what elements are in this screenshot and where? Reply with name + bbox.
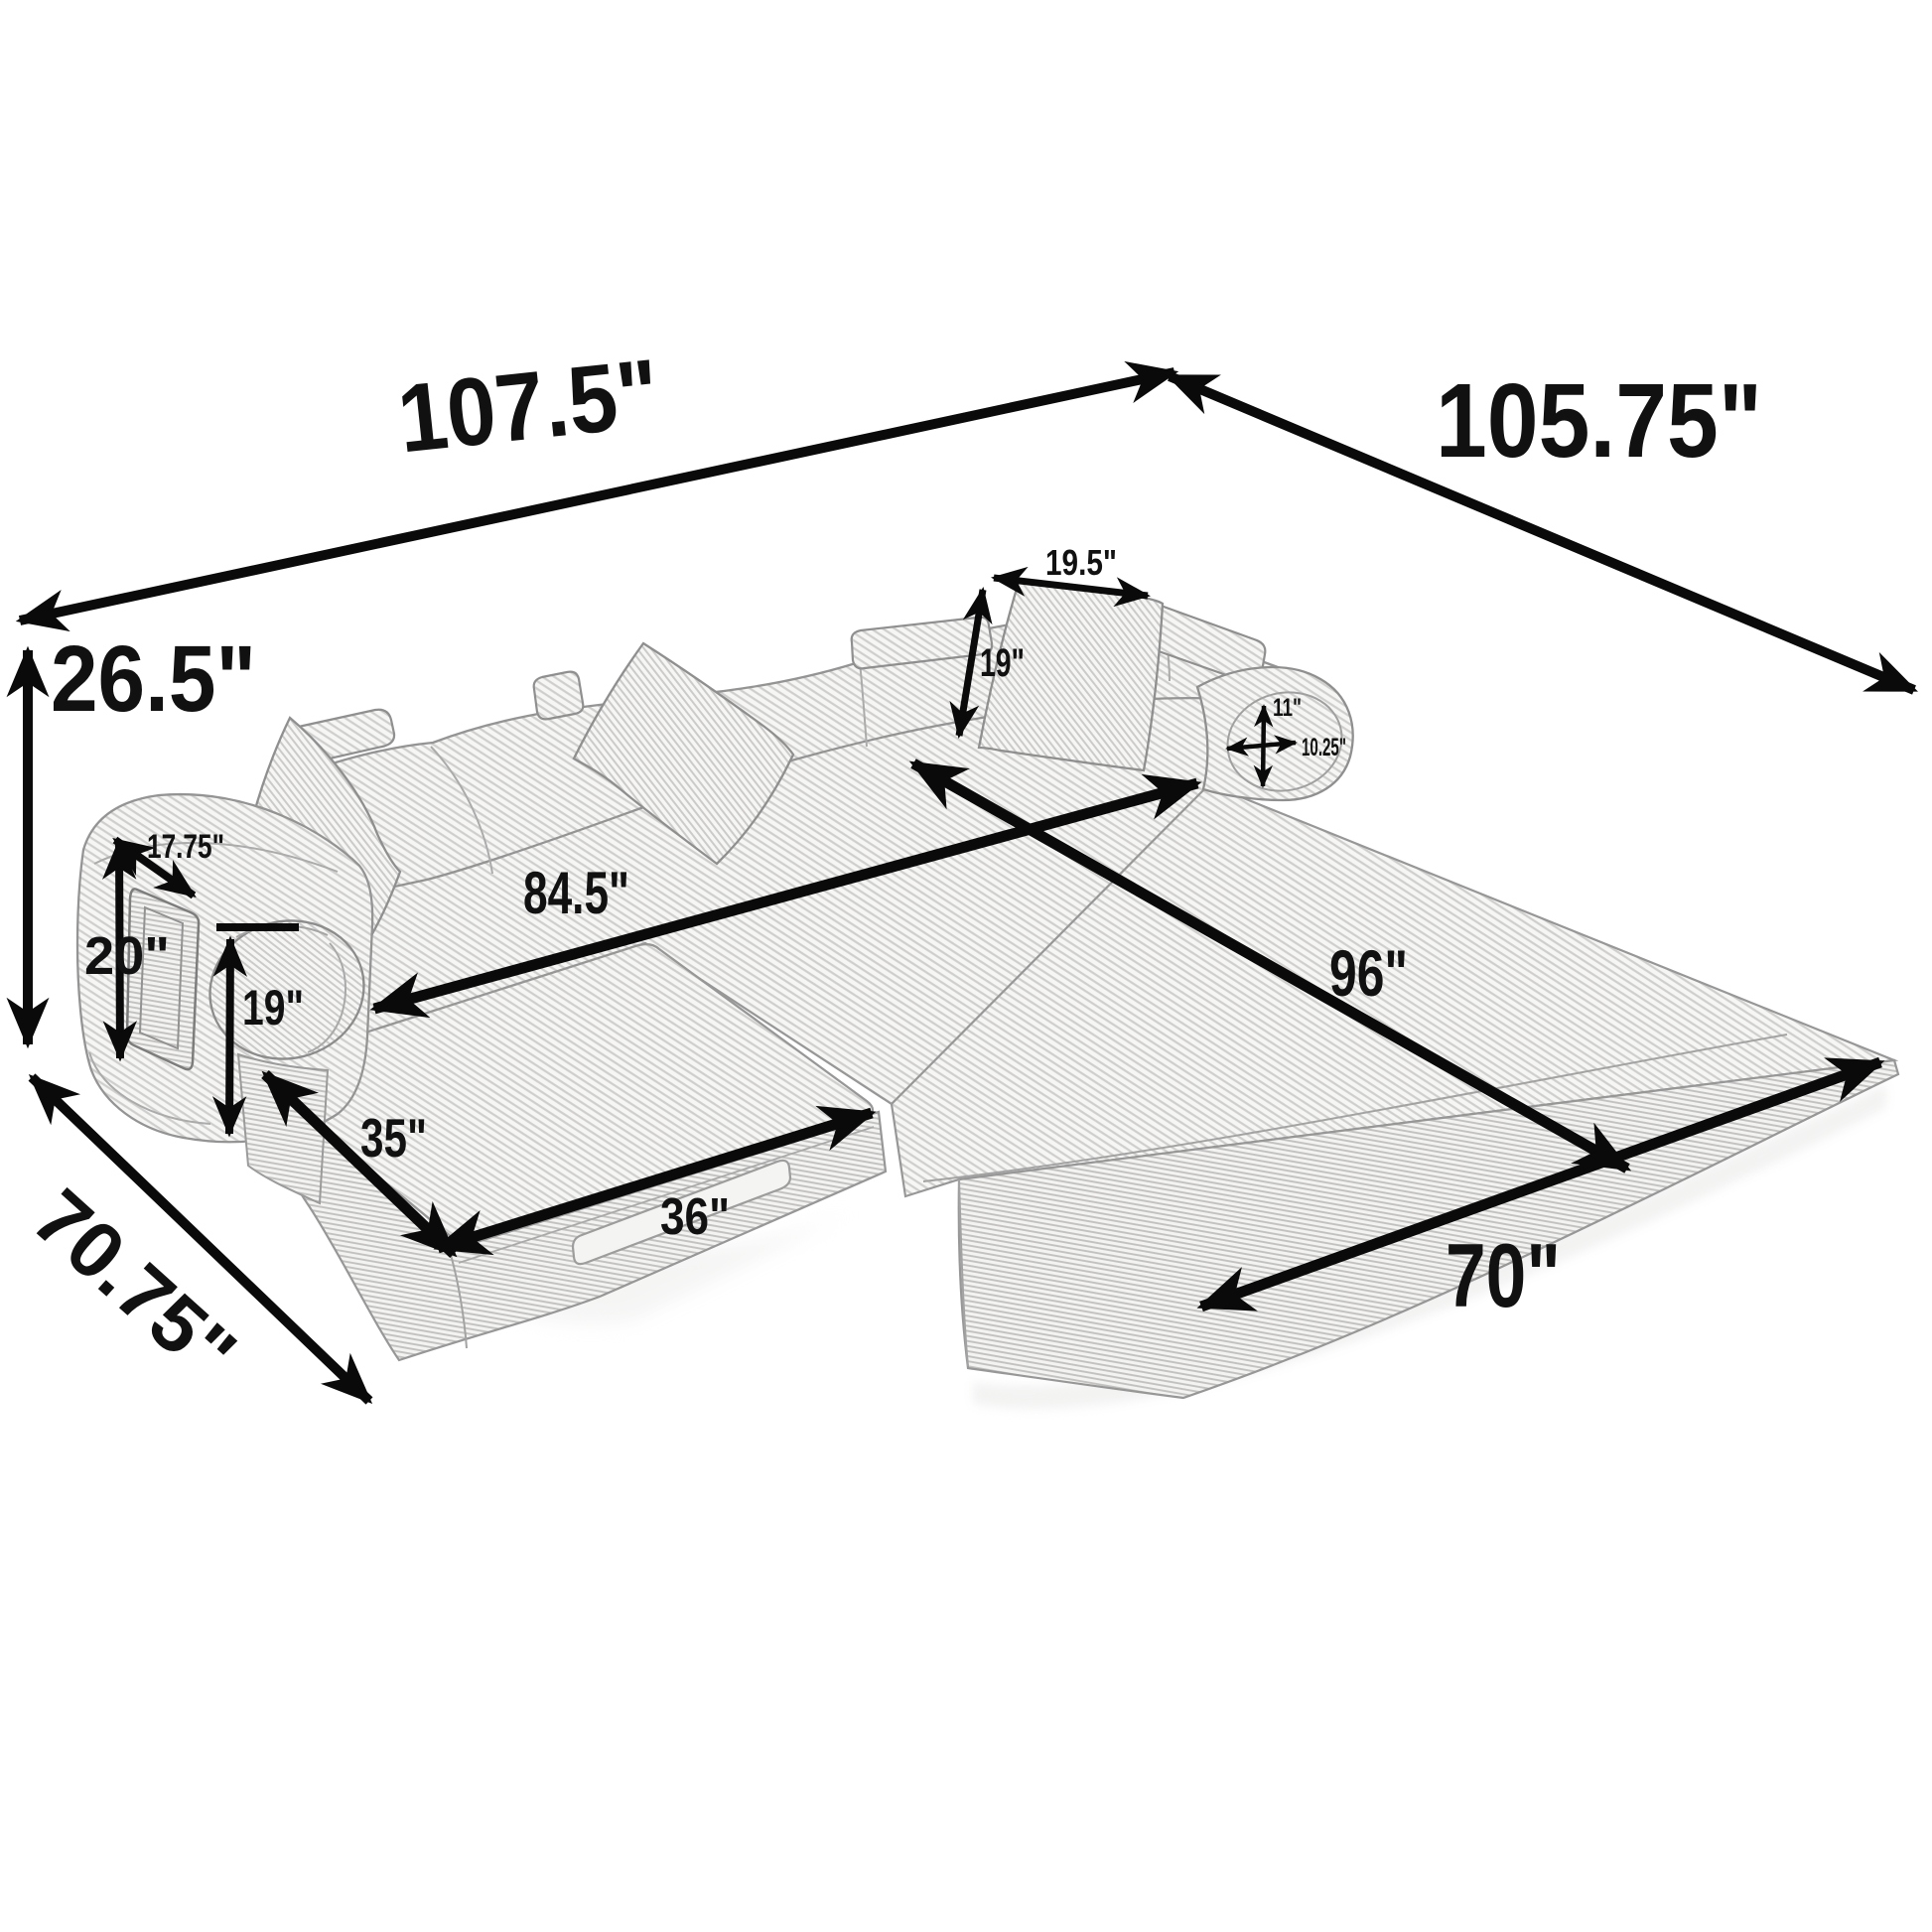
- svg-text:20": 20": [84, 926, 170, 986]
- svg-text:19": 19": [242, 980, 304, 1035]
- svg-text:10.25": 10.25": [1302, 734, 1346, 761]
- svg-text:70": 70": [1446, 1226, 1561, 1326]
- svg-text:105.75": 105.75": [1436, 362, 1762, 480]
- svg-text:26.5": 26.5": [51, 626, 256, 732]
- svg-text:17.75": 17.75": [147, 828, 224, 866]
- svg-text:19": 19": [980, 641, 1025, 685]
- svg-text:35": 35": [360, 1107, 427, 1169]
- svg-text:36": 36": [660, 1188, 730, 1246]
- svg-text:19.5": 19.5": [1045, 542, 1117, 583]
- svg-text:84.5": 84.5": [523, 860, 629, 926]
- svg-text:11": 11": [1273, 694, 1302, 722]
- svg-text:96": 96": [1329, 936, 1408, 1010]
